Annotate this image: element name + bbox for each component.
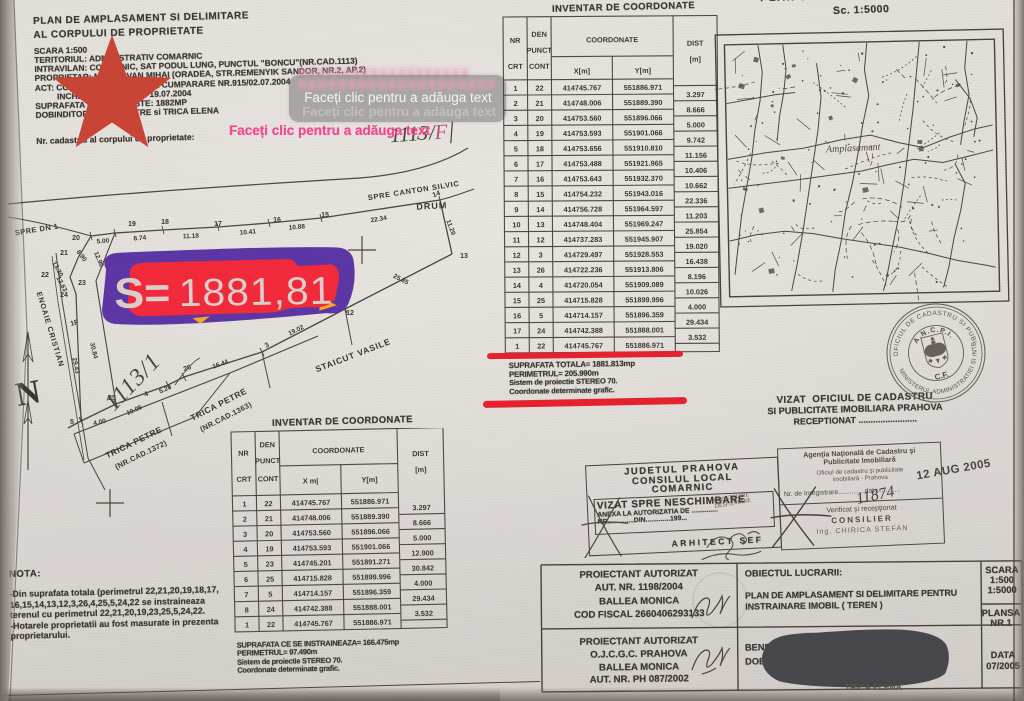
svg-text:8: 8 <box>514 190 518 199</box>
svg-text:13.30: 13.30 <box>50 260 64 278</box>
svg-text:COORDONATE: COORDONATE <box>312 445 364 455</box>
svg-text:25: 25 <box>537 296 545 305</box>
svg-text:414722.236: 414722.236 <box>564 265 603 274</box>
svg-text:22: 22 <box>41 272 49 279</box>
svg-text:13: 13 <box>513 266 521 275</box>
svg-text:1: 1 <box>513 84 517 93</box>
svg-text:5: 5 <box>244 560 248 569</box>
svg-text:5.000: 5.000 <box>687 120 705 129</box>
svg-text:3.297: 3.297 <box>686 90 704 99</box>
svg-text:21: 21 <box>265 514 273 523</box>
svg-text:6: 6 <box>514 160 518 169</box>
svg-text:S=: S= <box>114 269 171 318</box>
svg-text:551896.066: 551896.066 <box>624 113 663 122</box>
svg-text:30.84: 30.84 <box>88 342 99 360</box>
svg-text:4.00: 4.00 <box>93 418 107 428</box>
svg-text:551928.553: 551928.553 <box>625 250 664 259</box>
svg-text:551921.965: 551921.965 <box>624 159 663 168</box>
svg-text:4: 4 <box>539 281 544 290</box>
svg-text:414745.767: 414745.767 <box>563 83 602 92</box>
svg-text:DEN: DEN <box>531 30 546 39</box>
svg-text:16: 16 <box>513 311 521 320</box>
svg-text:1113/1: 1113/1 <box>100 348 167 416</box>
svg-text:22: 22 <box>535 84 543 93</box>
svg-text:20: 20 <box>265 529 273 538</box>
svg-text:8: 8 <box>245 605 249 614</box>
svg-text:414745.767: 414745.767 <box>564 341 603 350</box>
svg-text:6: 6 <box>244 575 248 584</box>
svg-text:13: 13 <box>536 220 544 229</box>
svg-text:5: 5 <box>268 590 272 599</box>
svg-text:414720.054: 414720.054 <box>564 280 604 289</box>
svg-text:551901.066: 551901.066 <box>352 542 391 552</box>
svg-text:STAICUT VASILE: STAICUT VASILE <box>314 336 392 374</box>
svg-text:551889.390: 551889.390 <box>351 512 390 522</box>
svg-text:11.156: 11.156 <box>685 151 707 160</box>
svg-text:414715.828: 414715.828 <box>293 573 332 583</box>
svg-text:5: 5 <box>70 419 74 426</box>
svg-text:22: 22 <box>267 620 275 629</box>
svg-text:414748.404: 414748.404 <box>564 220 604 229</box>
svg-text:15: 15 <box>536 190 544 199</box>
svg-text:551896.066: 551896.066 <box>351 527 390 537</box>
svg-text:12.900: 12.900 <box>411 548 434 557</box>
svg-text:10.41: 10.41 <box>240 228 257 236</box>
svg-text:19: 19 <box>128 221 136 228</box>
svg-text:414742.388: 414742.388 <box>294 604 333 614</box>
svg-text:20: 20 <box>536 114 544 123</box>
svg-text:551945.907: 551945.907 <box>625 234 664 243</box>
svg-text:3.297: 3.297 <box>412 503 430 512</box>
svg-text:551888.001: 551888.001 <box>625 325 664 334</box>
svg-text:10.05: 10.05 <box>126 404 144 417</box>
svg-text:CRT: CRT <box>508 62 524 71</box>
svg-text:414753.593: 414753.593 <box>293 543 332 553</box>
svg-text:15: 15 <box>321 212 329 219</box>
svg-text:29.434: 29.434 <box>412 594 435 603</box>
svg-text:551913.806: 551913.806 <box>625 265 664 274</box>
svg-text:414748.006: 414748.006 <box>292 513 331 523</box>
svg-text:21: 21 <box>536 99 544 108</box>
svg-text:8.666: 8.666 <box>413 518 431 527</box>
svg-text:CRT: CRT <box>236 475 252 484</box>
svg-text:4.000: 4.000 <box>414 579 432 588</box>
svg-text:CONT: CONT <box>258 474 279 483</box>
svg-text:3: 3 <box>514 114 518 123</box>
svg-text:15: 15 <box>513 296 521 305</box>
svg-text:551899.996: 551899.996 <box>625 295 664 304</box>
svg-text:[m]: [m] <box>415 465 427 474</box>
svg-text:NR: NR <box>510 36 521 45</box>
svg-text:17: 17 <box>214 221 222 228</box>
svg-text:551969.247: 551969.247 <box>625 219 664 228</box>
svg-text:21: 21 <box>60 250 68 257</box>
svg-text:551886.971: 551886.971 <box>624 83 663 92</box>
svg-text:14: 14 <box>513 281 522 290</box>
svg-text:551899.996: 551899.996 <box>352 572 391 582</box>
svg-text:4.000: 4.000 <box>688 302 706 311</box>
svg-text:5: 5 <box>539 311 543 320</box>
svg-text:22: 22 <box>264 499 272 508</box>
svg-text:17: 17 <box>513 326 521 335</box>
svg-text:5.20: 5.20 <box>158 384 173 396</box>
svg-text:5: 5 <box>514 144 518 153</box>
svg-text:551901.066: 551901.066 <box>624 128 663 137</box>
svg-text:551891.271: 551891.271 <box>352 557 391 567</box>
svg-text:551888.001: 551888.001 <box>353 602 392 612</box>
svg-text:551964.597: 551964.597 <box>625 204 664 213</box>
svg-text:26: 26 <box>537 266 545 275</box>
svg-text:3.532: 3.532 <box>415 609 433 618</box>
svg-text:2: 2 <box>514 99 518 108</box>
svg-text:DIST: DIST <box>412 449 429 458</box>
svg-text:13: 13 <box>460 253 468 260</box>
svg-text:414729.497: 414729.497 <box>564 250 603 259</box>
svg-text:24: 24 <box>60 292 68 299</box>
svg-text:24: 24 <box>267 605 276 614</box>
svg-text:414753.560: 414753.560 <box>292 528 331 538</box>
svg-text:7: 7 <box>244 590 248 599</box>
svg-text:C.F.: C.F. <box>934 370 950 382</box>
svg-text:18: 18 <box>536 144 544 153</box>
svg-text:NR: NR <box>238 449 249 458</box>
svg-text:551886.971: 551886.971 <box>351 497 390 507</box>
svg-text:1F: 1F <box>70 319 80 328</box>
svg-text:414715.828: 414715.828 <box>564 296 603 305</box>
svg-text:10.88: 10.88 <box>288 223 305 231</box>
svg-text:8.666: 8.666 <box>686 105 704 114</box>
svg-text:8.196: 8.196 <box>688 272 706 281</box>
svg-text:16: 16 <box>536 175 544 184</box>
svg-text:24: 24 <box>537 326 546 335</box>
svg-text:22.336: 22.336 <box>685 196 707 205</box>
svg-text:551889.390: 551889.390 <box>624 98 663 107</box>
svg-text:1: 1 <box>245 620 249 629</box>
svg-text:11: 11 <box>513 235 521 244</box>
svg-text:1: 1 <box>242 500 246 509</box>
svg-text:414737.283: 414737.283 <box>564 235 603 244</box>
svg-text:X[m]: X[m] <box>574 66 591 75</box>
svg-text:25: 25 <box>266 575 274 584</box>
svg-text:11.203: 11.203 <box>685 211 707 220</box>
svg-text:551896.359: 551896.359 <box>353 587 392 597</box>
svg-text:10.026: 10.026 <box>686 287 708 296</box>
svg-text:4: 4 <box>514 129 519 138</box>
svg-text:551932.370: 551932.370 <box>624 174 663 183</box>
svg-text:3.532: 3.532 <box>688 333 706 342</box>
svg-text:14: 14 <box>536 205 545 214</box>
svg-text:551886.971: 551886.971 <box>353 617 392 627</box>
svg-text:414714.157: 414714.157 <box>294 588 333 598</box>
svg-text:551909.089: 551909.089 <box>625 280 664 289</box>
svg-text:COORDONATE: COORDONATE <box>586 35 638 44</box>
svg-text:18: 18 <box>161 219 169 226</box>
svg-text:10.406: 10.406 <box>685 166 707 175</box>
svg-text:414748.006: 414748.006 <box>563 98 602 107</box>
svg-text:7: 7 <box>514 175 518 184</box>
svg-text:19: 19 <box>265 544 273 553</box>
svg-text:3: 3 <box>539 251 543 260</box>
svg-text:22.34: 22.34 <box>370 215 388 225</box>
svg-text:414753.593: 414753.593 <box>563 129 602 138</box>
svg-text:16.438: 16.438 <box>686 257 708 266</box>
svg-text:23: 23 <box>266 559 274 568</box>
svg-text:5.000: 5.000 <box>413 533 431 542</box>
svg-text:414753.560: 414753.560 <box>563 114 602 123</box>
svg-text:414745.767: 414745.767 <box>294 619 333 629</box>
svg-text:OFICIUL DE CADASTRU SI PUBLICI: OFICIUL DE CADASTRU SI PUBLICITATE IMOBI… <box>884 301 978 368</box>
svg-text:414745.767: 414745.767 <box>292 498 331 508</box>
svg-text:9: 9 <box>514 205 518 214</box>
svg-text:551896.359: 551896.359 <box>625 310 664 319</box>
svg-text:PUNCT: PUNCT <box>255 456 281 466</box>
svg-text:10.662: 10.662 <box>685 181 707 190</box>
svg-text:25.85: 25.85 <box>392 273 410 287</box>
svg-text:30.842: 30.842 <box>412 563 435 572</box>
svg-text:[m]: [m] <box>690 55 702 64</box>
svg-text:DEN: DEN <box>259 440 275 449</box>
svg-text:25.854: 25.854 <box>685 227 708 236</box>
svg-text:10: 10 <box>512 220 520 229</box>
svg-text:4: 4 <box>243 545 248 554</box>
svg-text:23: 23 <box>78 280 86 287</box>
svg-text:CONT: CONT <box>529 62 550 71</box>
svg-text:X m|: X m| <box>303 476 319 485</box>
svg-text:414742.388: 414742.388 <box>564 326 603 335</box>
svg-text:12: 12 <box>513 251 521 260</box>
svg-text:29.434: 29.434 <box>686 318 709 327</box>
svg-text:9.742: 9.742 <box>687 136 705 145</box>
svg-text:DIST: DIST <box>687 39 704 48</box>
svg-text:414745.201: 414745.201 <box>293 558 332 568</box>
svg-text:Y[m]: Y[m] <box>635 66 652 75</box>
svg-text:551910.810: 551910.810 <box>624 143 663 152</box>
svg-text:414714.157: 414714.157 <box>564 311 603 320</box>
svg-text:19.020: 19.020 <box>685 242 707 251</box>
svg-text:414753.656: 414753.656 <box>563 144 602 153</box>
svg-text:414756.728: 414756.728 <box>564 205 603 214</box>
svg-text:414753.643: 414753.643 <box>563 174 602 183</box>
svg-text:20: 20 <box>72 235 80 242</box>
svg-text:22: 22 <box>537 342 545 351</box>
svg-text:DRUM: DRUM <box>416 200 447 212</box>
svg-text:551943.016: 551943.016 <box>624 189 663 198</box>
svg-text:1881,81: 1881,81 <box>178 269 334 314</box>
svg-text:12: 12 <box>536 235 544 244</box>
svg-text:414754.232: 414754.232 <box>563 189 602 198</box>
svg-text:16.44: 16.44 <box>212 358 230 370</box>
svg-text:3: 3 <box>243 530 247 539</box>
svg-text:1: 1 <box>515 342 519 351</box>
svg-text:Y[m]: Y[m] <box>361 475 378 484</box>
svg-text:2: 2 <box>243 515 247 524</box>
svg-text:16: 16 <box>273 217 281 224</box>
svg-text:19: 19 <box>536 129 544 138</box>
svg-text:551886.971: 551886.971 <box>625 341 664 350</box>
svg-text:17: 17 <box>536 160 544 169</box>
svg-text:414753.488: 414753.488 <box>563 159 602 168</box>
svg-text:PUNCT: PUNCT <box>527 46 553 55</box>
